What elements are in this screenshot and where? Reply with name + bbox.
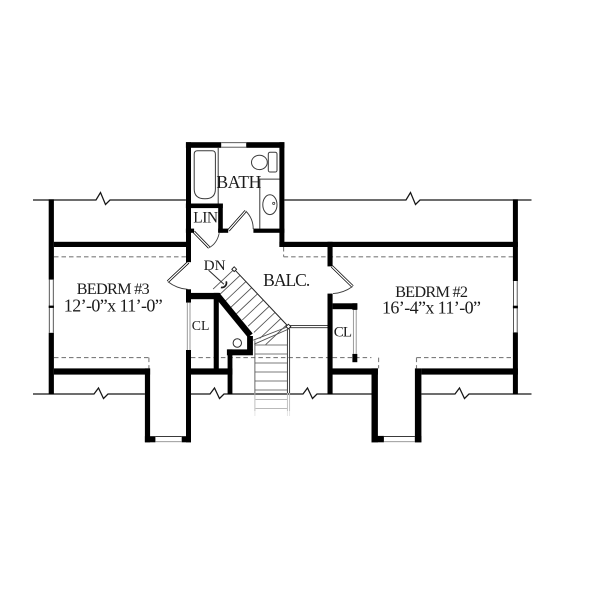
- svg-text:CL: CL: [192, 318, 210, 333]
- svg-text:LIN: LIN: [193, 210, 218, 227]
- svg-text:BATH: BATH: [216, 172, 261, 192]
- svg-text:CL: CL: [334, 324, 352, 340]
- svg-text:12’-0”x 11’-0”: 12’-0”x 11’-0”: [64, 296, 163, 316]
- svg-text:BALC.: BALC.: [263, 270, 310, 290]
- svg-text:DN: DN: [204, 257, 226, 274]
- svg-text:16’-4”x 11’-0”: 16’-4”x 11’-0”: [382, 298, 481, 318]
